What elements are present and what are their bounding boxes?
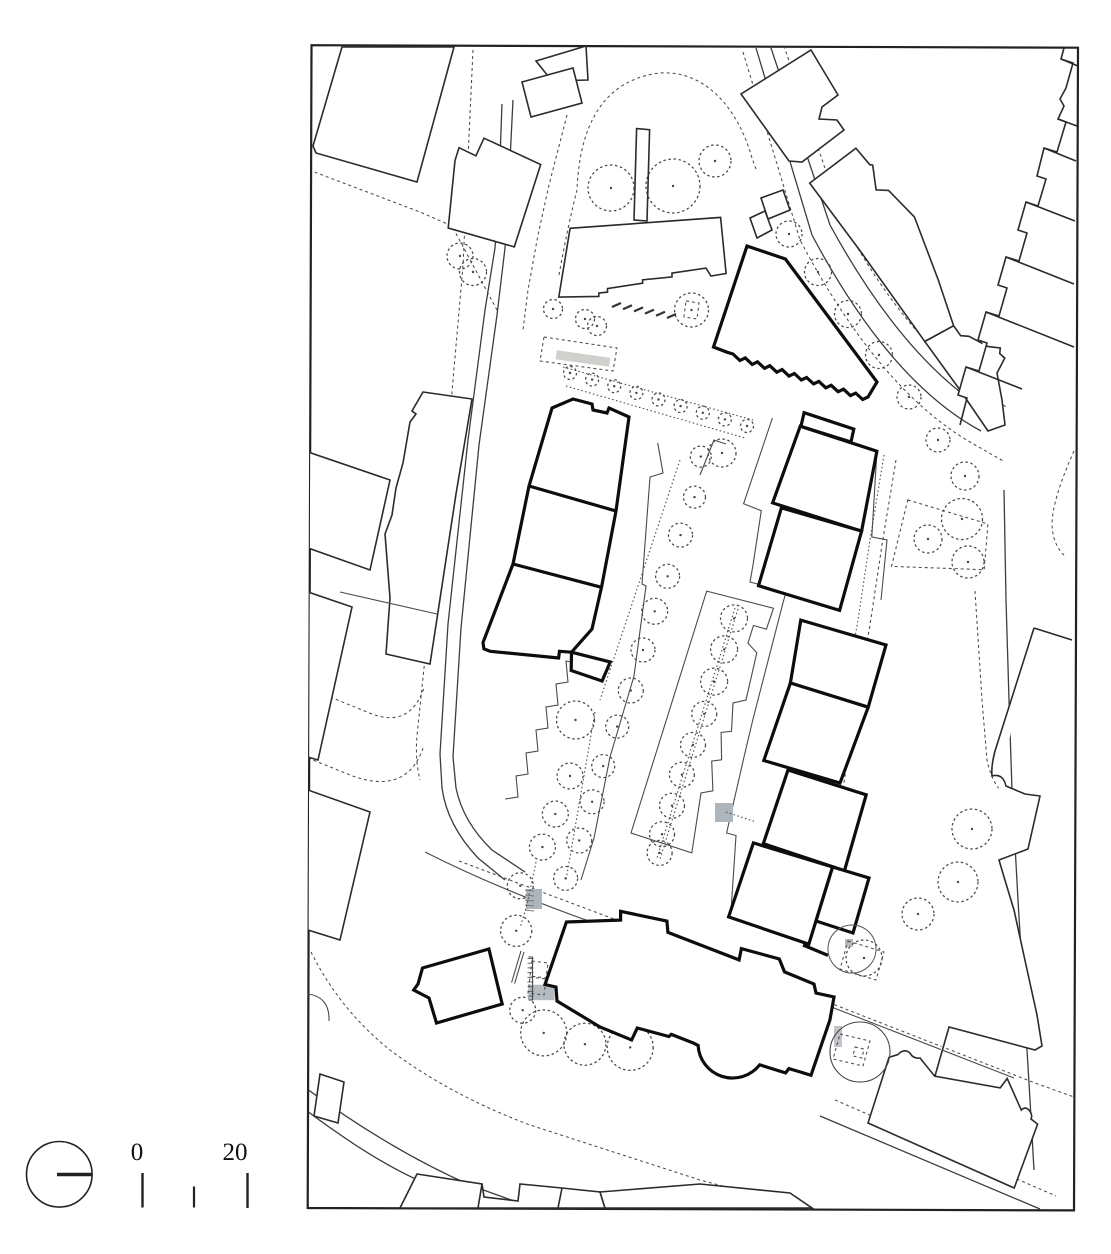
svg-text:20: 20 [223,1139,248,1166]
svg-text:0: 0 [131,1139,144,1166]
